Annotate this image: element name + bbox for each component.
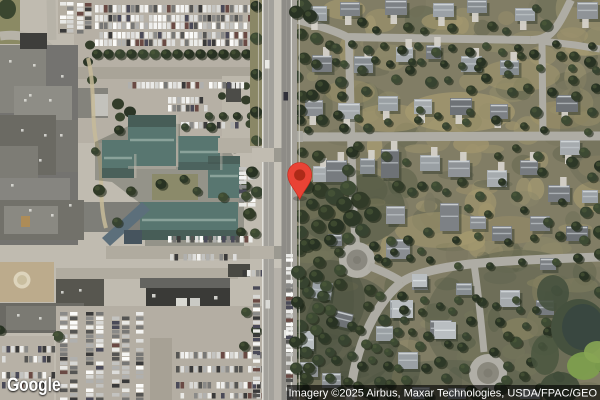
svg-text:Imagery ©2025 Airbus, Maxar Te: Imagery ©2025 Airbus, Maxar Technologies… xyxy=(289,388,598,400)
